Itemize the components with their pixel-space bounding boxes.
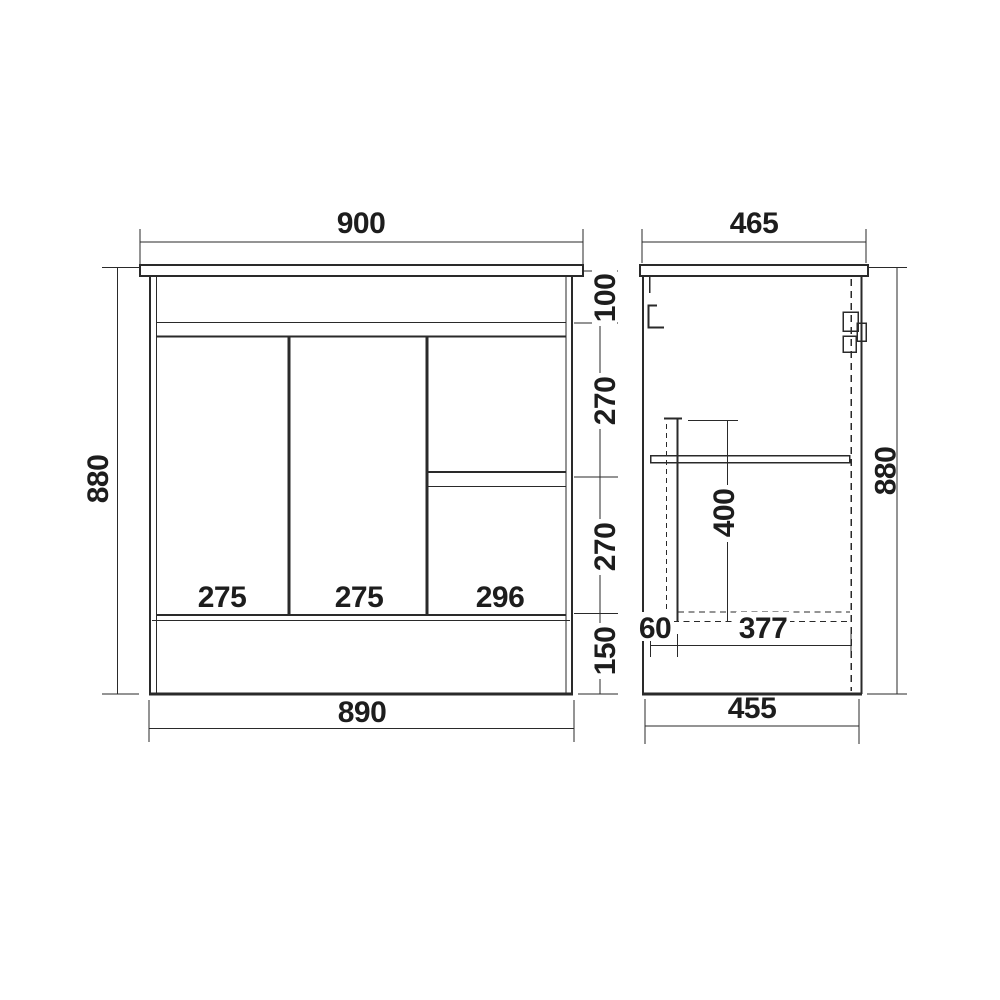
dim-side-bottom-depth: 455: [645, 692, 859, 744]
dim-label-top-section: 100: [589, 274, 622, 323]
side-shelf: [651, 456, 850, 463]
dim-label-depth: 377: [739, 612, 788, 645]
dim-front-height: 880: [82, 267, 139, 694]
dim-drawer-bank-width: 296: [476, 581, 525, 614]
dim-label: 400: [708, 489, 741, 538]
drawing-canvas: 275 275 296 900 880 890 100 270 270: [0, 0, 1000, 1000]
dim-side-internal-depth: 60 377: [637, 612, 851, 657]
dim-label: 880: [82, 455, 115, 504]
dim-label: 465: [730, 207, 779, 240]
side-countertop: [640, 265, 868, 276]
dim-label: 455: [728, 692, 777, 725]
front-countertop: [140, 265, 583, 276]
dim-label-offset: 60: [639, 612, 671, 645]
dim-side-top-depth: 465: [642, 207, 866, 263]
dim-label: 890: [338, 696, 387, 729]
dim-label-lower-drawer: 270: [589, 523, 622, 572]
dim-left-door-width: 275: [198, 581, 247, 614]
dim-label-upper-drawer: 270: [589, 377, 622, 426]
hinge-bracket-icon: [649, 306, 665, 328]
dim-label: 900: [337, 207, 386, 240]
dim-front-height-chain: 100 270 270 150: [574, 270, 622, 694]
dim-side-internal-height: 400: [688, 420, 741, 621]
technical-drawing: 275 275 296 900 880 890 100 270 270: [0, 0, 1000, 1000]
dim-middle-door-width: 275: [335, 581, 384, 614]
dim-front-bottom-width: 890: [149, 696, 574, 742]
front-view: [140, 265, 583, 694]
dim-label: 880: [870, 447, 903, 496]
dim-label-kickboard: 150: [589, 627, 622, 676]
hinge-plate-icon: [843, 336, 856, 352]
dim-front-top-width: 900: [140, 207, 583, 264]
dim-side-height: 880: [867, 267, 907, 694]
